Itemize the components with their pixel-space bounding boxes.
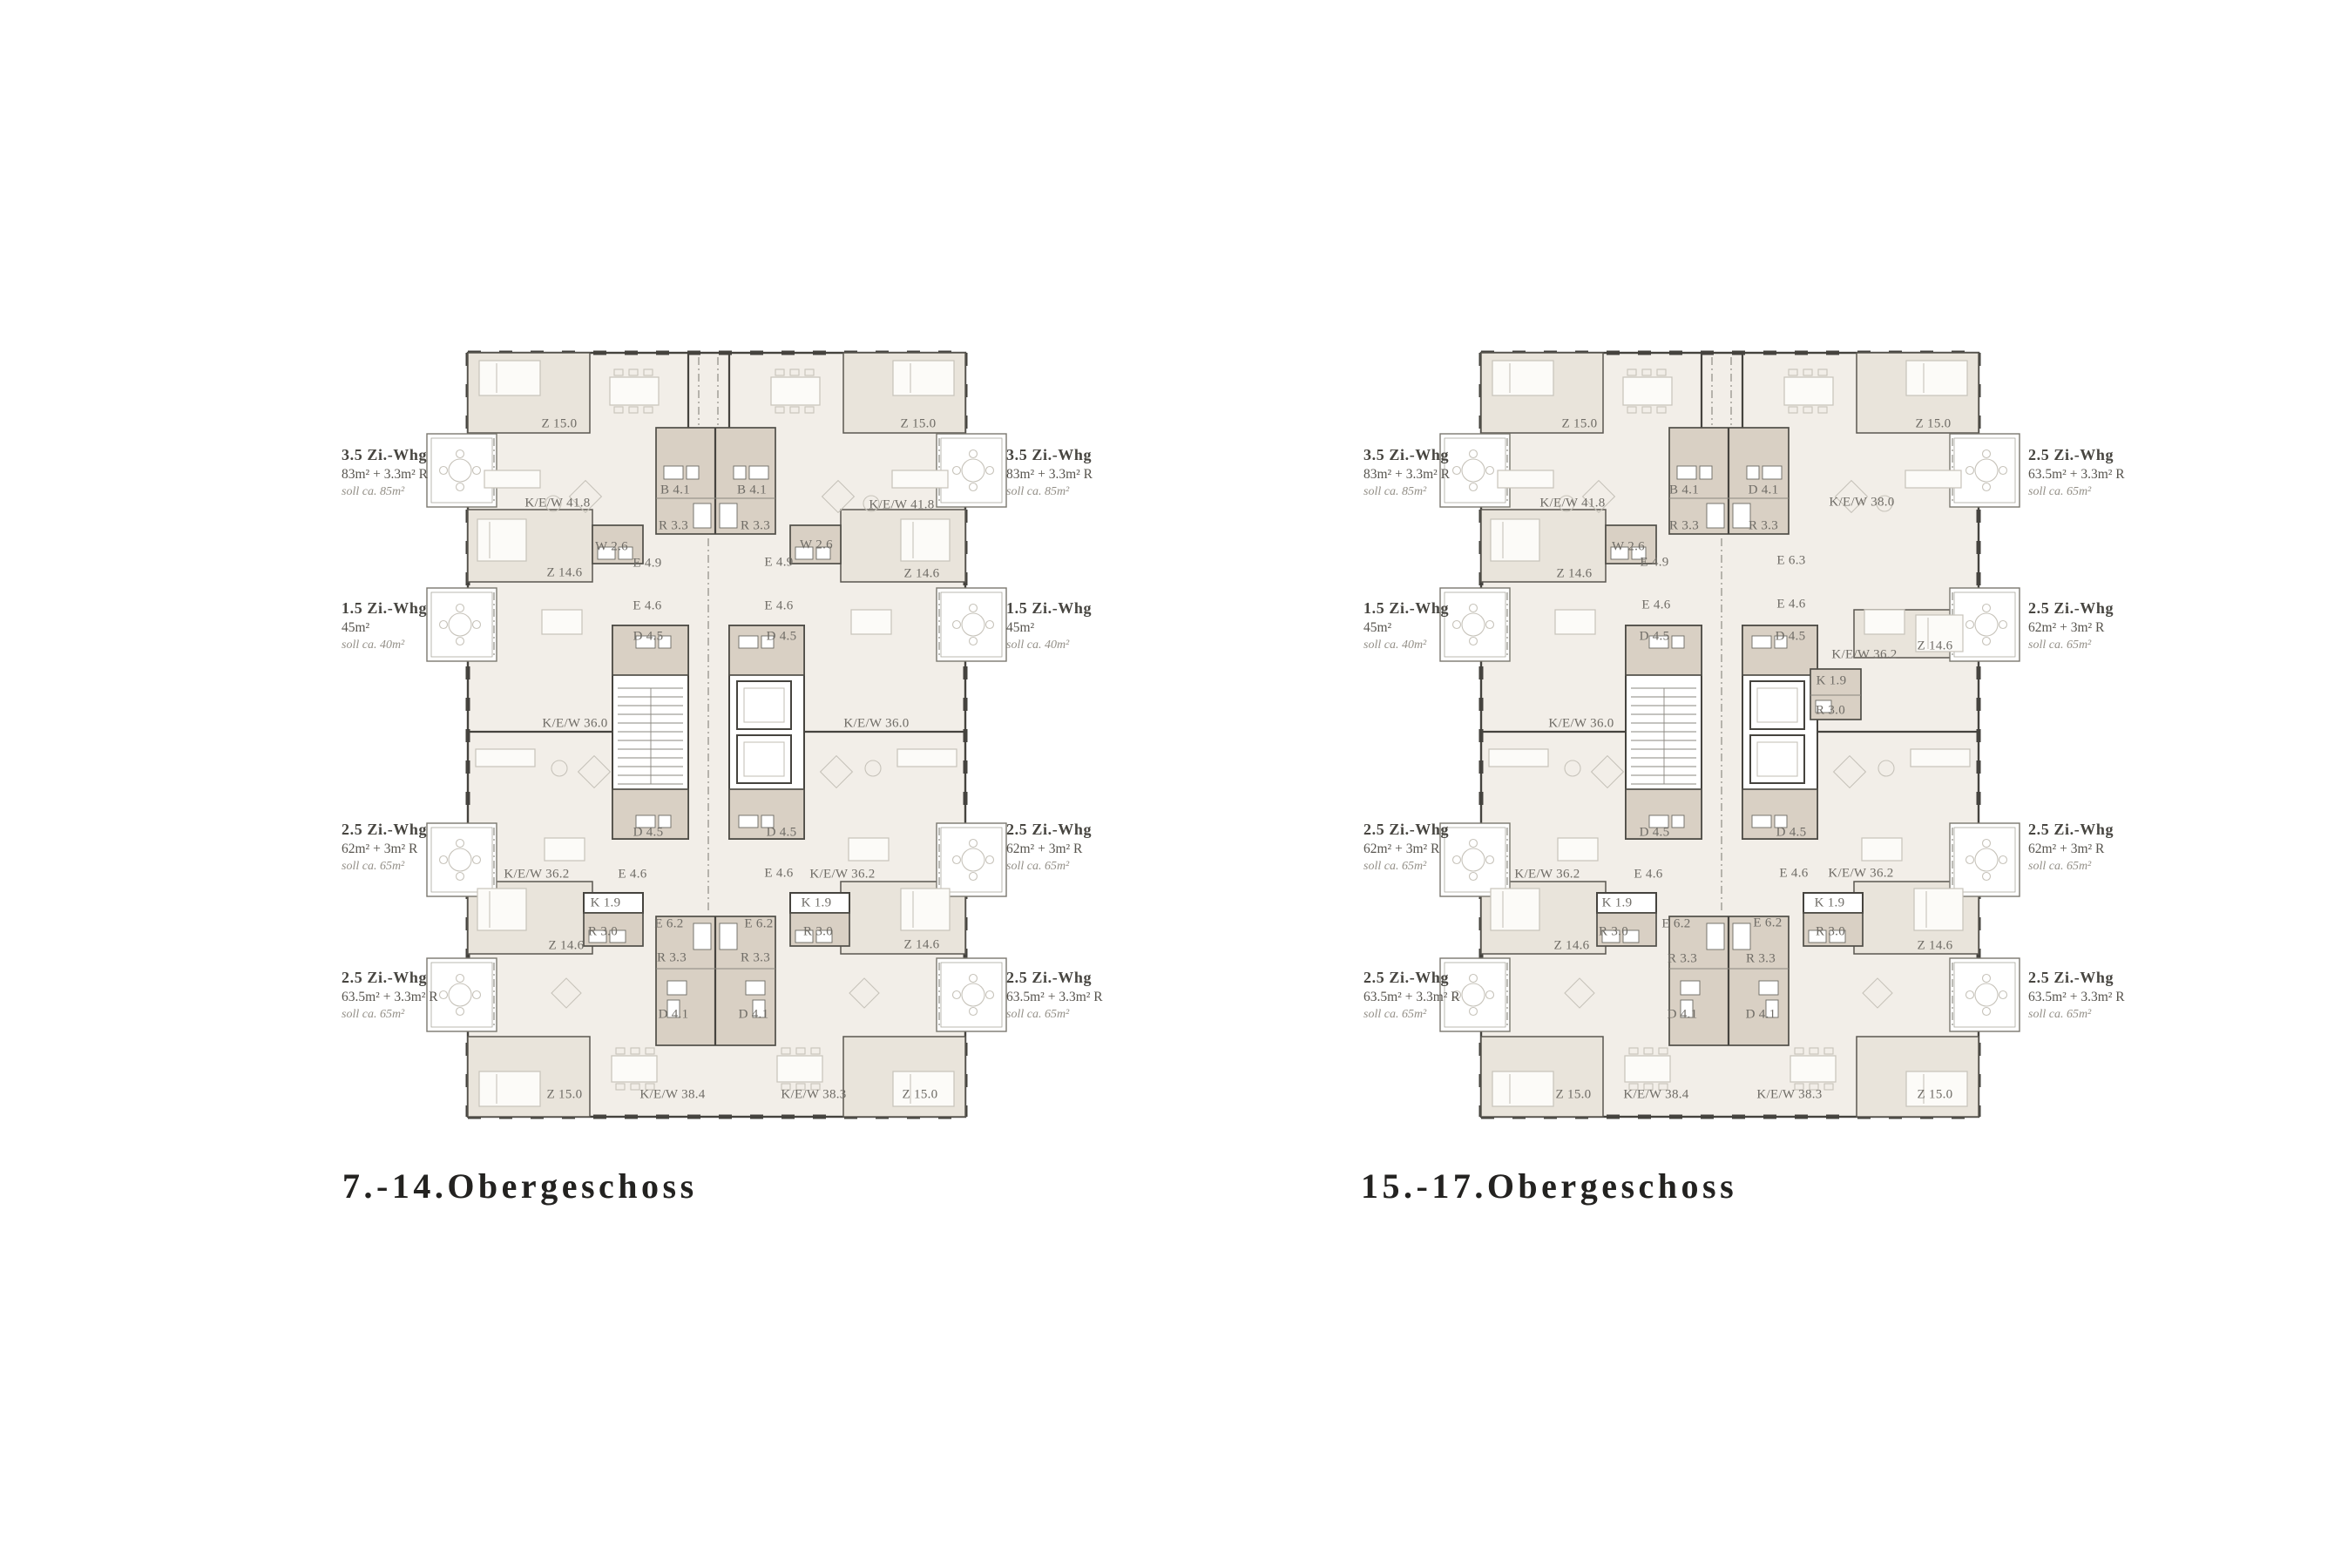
apartment-label: 2.5 Zi.-Whg62m² + 3m² Rsoll ca. 65m²	[342, 821, 427, 874]
floor-plan-sheet: Z 15.0Z 15.0K/E/W 41.8K/E/W 41.8B 4.1B 4…	[0, 0, 2341, 1568]
apartment-area-label: 83m² + 3.3m² R	[1363, 467, 1450, 483]
room-label: D 4.5	[1640, 826, 1670, 841]
room-label: E 4.6	[764, 599, 793, 614]
apartment-area-label: 62m² + 3m² R	[1363, 841, 1449, 858]
room-label: R 3.0	[1816, 704, 1845, 719]
apartment-label: 2.5 Zi.-Whg63.5m² + 3.3m² Rsoll ca. 65m²	[1006, 969, 1103, 1022]
apartment-area-label: 62m² + 3m² R	[342, 841, 427, 858]
apartment-area-label: 62m² + 3m² R	[2028, 841, 2114, 858]
room-label: B 4.1	[1669, 483, 1699, 498]
room-label: K/E/W 38.4	[639, 1088, 705, 1103]
apartment-soll-label: soll ca. 65m²	[1363, 859, 1449, 874]
room-label: K/E/W 38.3	[1756, 1088, 1822, 1103]
apartment-label: 2.5 Zi.-Whg62m² + 3m² Rsoll ca. 65m²	[2028, 599, 2114, 652]
apartment-type-label: 2.5 Zi.-Whg	[1006, 969, 1103, 988]
apartment-type-label: 2.5 Zi.-Whg	[2028, 821, 2114, 840]
apartment-type-label: 2.5 Zi.-Whg	[2028, 446, 2125, 465]
room-label: Z 15.0	[901, 417, 937, 432]
apartment-type-label: 3.5 Zi.-Whg	[342, 446, 428, 465]
room-label: R 3.3	[1746, 952, 1776, 967]
room-label: Z 14.6	[904, 938, 940, 953]
room-label: D 4.5	[767, 826, 797, 841]
apartment-label: 2.5 Zi.-Whg62m² + 3m² Rsoll ca. 65m²	[1006, 821, 1092, 874]
room-label: K/E/W 36.2	[1831, 648, 1897, 663]
apartment-label: 3.5 Zi.-Whg83m² + 3.3m² Rsoll ca. 85m²	[1363, 446, 1450, 499]
room-label: E 4.6	[1779, 867, 1808, 882]
apartment-soll-label: soll ca. 65m²	[2028, 859, 2114, 874]
apartment-type-label: 2.5 Zi.-Whg	[1006, 821, 1092, 840]
apartment-soll-label: soll ca. 40m²	[1006, 638, 1092, 652]
room-label: K 1.9	[591, 896, 621, 911]
room-label: Z 15.0	[1562, 417, 1598, 432]
room-label: D 4.5	[1776, 630, 1806, 645]
apartment-soll-label: soll ca. 65m²	[2028, 1007, 2125, 1022]
room-label: B 4.1	[737, 483, 767, 498]
apartment-area-label: 63.5m² + 3.3m² R	[1006, 990, 1103, 1006]
apartment-area-label: 45m²	[1006, 620, 1092, 637]
room-label: K/E/W 36.2	[1514, 868, 1580, 882]
floor-plan-svg	[418, 348, 1011, 1119]
room-label: E 4.6	[1776, 598, 1805, 612]
room-label: R 3.3	[741, 951, 770, 966]
room-label: K/E/W 38.0	[1829, 496, 1894, 510]
room-label: Z 15.0	[1918, 1088, 1953, 1103]
apartment-label: 3.5 Zi.-Whg83m² + 3.3m² Rsoll ca. 85m²	[1006, 446, 1093, 499]
room-label: E 4.9	[764, 556, 793, 571]
room-label: Z 14.6	[549, 939, 585, 954]
room-label: W 2.6	[800, 538, 833, 553]
room-label: Z 14.6	[904, 567, 940, 582]
room-label: D 4.1	[1749, 483, 1779, 498]
room-label: K 1.9	[1817, 674, 1847, 689]
room-label: Z 14.6	[1557, 567, 1593, 582]
room-label: D 4.5	[633, 826, 664, 841]
apartment-soll-label: soll ca. 65m²	[342, 1007, 438, 1022]
apartment-type-label: 1.5 Zi.-Whg	[1363, 599, 1449, 618]
apartment-soll-label: soll ca. 65m²	[1006, 859, 1092, 874]
room-label: K/E/W 36.0	[542, 717, 607, 732]
room-label: E 4.9	[633, 557, 661, 571]
room-label: K 1.9	[1815, 896, 1845, 911]
room-label: D 4.1	[659, 1008, 689, 1023]
apartment-type-label: 2.5 Zi.-Whg	[342, 821, 427, 840]
room-label: B 4.1	[660, 483, 690, 498]
floor-plan-drawing-7-14: Z 15.0Z 15.0K/E/W 41.8K/E/W 41.8B 4.1B 4…	[418, 348, 1011, 1119]
room-label: K/E/W 36.0	[843, 717, 909, 732]
apartment-label: 1.5 Zi.-Whg45m²soll ca. 40m²	[1006, 599, 1092, 652]
apartment-area-label: 63.5m² + 3.3m² R	[342, 990, 438, 1006]
room-label: Z 14.6	[1554, 939, 1590, 954]
plan-title-7-14: 7.-14.Obergeschoss	[342, 1166, 698, 1206]
apartment-type-label: 3.5 Zi.-Whg	[1006, 446, 1093, 465]
apartment-type-label: 1.5 Zi.-Whg	[342, 599, 427, 618]
apartment-type-label: 2.5 Zi.-Whg	[1363, 969, 1460, 988]
room-label: E 6.2	[744, 917, 773, 932]
apartment-label: 1.5 Zi.-Whg45m²soll ca. 40m²	[342, 599, 427, 652]
room-label: W 2.6	[1612, 540, 1645, 555]
apartment-label: 3.5 Zi.-Whg83m² + 3.3m² Rsoll ca. 85m²	[342, 446, 428, 499]
room-label: D 4.1	[1668, 1008, 1698, 1023]
room-label: E 6.3	[1776, 554, 1805, 569]
room-label: E 4.6	[1641, 598, 1670, 613]
room-label: K/E/W 36.2	[504, 868, 569, 882]
apartment-type-label: 3.5 Zi.-Whg	[1363, 446, 1450, 465]
apartment-soll-label: soll ca. 40m²	[342, 638, 427, 652]
apartment-type-label: 2.5 Zi.-Whg	[2028, 969, 2125, 988]
room-label: K/E/W 36.2	[1828, 867, 1893, 882]
apartment-type-label: 2.5 Zi.-Whg	[342, 969, 438, 988]
apartment-area-label: 62m² + 3m² R	[1006, 841, 1092, 858]
room-label: Z 14.6	[547, 566, 583, 581]
room-label: R 3.3	[1749, 519, 1778, 534]
floor-plan-svg	[1431, 348, 2024, 1119]
apartment-soll-label: soll ca. 65m²	[1363, 1007, 1460, 1022]
room-label: K/E/W 38.3	[781, 1088, 846, 1103]
room-label: E 4.6	[633, 599, 661, 614]
room-label: K/E/W 41.8	[1539, 497, 1605, 511]
room-label: R 3.0	[803, 925, 833, 940]
apartment-area-label: 63.5m² + 3.3m² R	[2028, 467, 2125, 483]
room-label: E 6.2	[1753, 916, 1782, 931]
room-label: D 4.5	[1776, 826, 1807, 841]
apartment-type-label: 2.5 Zi.-Whg	[1363, 821, 1449, 840]
apartment-area-label: 63.5m² + 3.3m² R	[1363, 990, 1460, 1006]
room-label: K 1.9	[1602, 896, 1633, 911]
room-label: D 4.1	[1746, 1008, 1776, 1023]
apartment-label: 2.5 Zi.-Whg62m² + 3m² Rsoll ca. 65m²	[2028, 821, 2114, 874]
room-label: R 3.3	[741, 519, 770, 534]
plan-title-15-17: 15.-17.Obergeschoss	[1361, 1166, 1737, 1206]
room-label: R 3.3	[1669, 519, 1699, 534]
apartment-soll-label: soll ca. 85m²	[342, 484, 428, 499]
room-label: E 4.6	[764, 867, 793, 882]
apartment-label: 2.5 Zi.-Whg63.5m² + 3.3m² Rsoll ca. 65m²	[1363, 969, 1460, 1022]
room-label: D 4.5	[767, 630, 797, 645]
room-label: Z 15.0	[542, 417, 578, 432]
room-label: R 3.3	[659, 519, 688, 534]
apartment-area-label: 83m² + 3.3m² R	[1006, 467, 1093, 483]
apartment-area-label: 62m² + 3m² R	[2028, 620, 2114, 637]
apartment-soll-label: soll ca. 65m²	[342, 859, 427, 874]
room-label: E 4.6	[618, 868, 646, 882]
room-label: K/E/W 41.8	[869, 498, 934, 513]
room-label: D 4.1	[739, 1008, 769, 1023]
apartment-soll-label: soll ca. 65m²	[1006, 1007, 1103, 1022]
room-label: E 6.2	[1661, 917, 1690, 932]
apartment-type-label: 1.5 Zi.-Whg	[1006, 599, 1092, 618]
room-label: Z 15.0	[903, 1088, 938, 1103]
room-label: Z 15.0	[1916, 417, 1952, 432]
apartment-type-label: 2.5 Zi.-Whg	[2028, 599, 2114, 618]
room-label: E 4.9	[1640, 556, 1668, 571]
apartment-soll-label: soll ca. 40m²	[1363, 638, 1449, 652]
room-label: W 2.6	[595, 540, 628, 555]
apartment-label: 2.5 Zi.-Whg62m² + 3m² Rsoll ca. 65m²	[1363, 821, 1449, 874]
apartment-area-label: 83m² + 3.3m² R	[342, 467, 428, 483]
apartment-soll-label: soll ca. 85m²	[1363, 484, 1450, 499]
apartment-area-label: 63.5m² + 3.3m² R	[2028, 990, 2125, 1006]
apartment-area-label: 45m²	[1363, 620, 1449, 637]
room-label: K/E/W 41.8	[524, 497, 590, 511]
apartment-area-label: 45m²	[342, 620, 427, 637]
room-label: Z 14.6	[1918, 939, 1953, 954]
room-label: K/E/W 38.4	[1623, 1088, 1688, 1103]
apartment-label: 1.5 Zi.-Whg45m²soll ca. 40m²	[1363, 599, 1449, 652]
room-label: R 3.0	[1599, 925, 1628, 940]
apartment-label: 2.5 Zi.-Whg63.5m² + 3.3m² Rsoll ca. 65m²	[2028, 969, 2125, 1022]
room-label: D 4.5	[1640, 630, 1670, 645]
room-label: K 1.9	[802, 896, 832, 911]
apartment-soll-label: soll ca. 85m²	[1006, 484, 1093, 499]
room-label: E 6.2	[654, 917, 683, 932]
room-label: E 4.6	[1634, 868, 1662, 882]
room-label: R 3.3	[657, 951, 687, 966]
apartment-label: 2.5 Zi.-Whg63.5m² + 3.3m² Rsoll ca. 65m²	[342, 969, 438, 1022]
room-label: K/E/W 36.0	[1548, 717, 1614, 732]
floor-plan-drawing-15-17: Z 15.0Z 15.0K/E/W 41.8K/E/W 38.0B 4.1D 4…	[1431, 348, 2024, 1119]
room-label: K/E/W 36.2	[809, 868, 875, 882]
room-label: R 3.3	[1668, 952, 1697, 967]
room-label: Z 15.0	[547, 1088, 583, 1103]
apartment-label: 2.5 Zi.-Whg63.5m² + 3.3m² Rsoll ca. 65m²	[2028, 446, 2125, 499]
apartment-soll-label: soll ca. 65m²	[2028, 638, 2114, 652]
apartment-soll-label: soll ca. 65m²	[2028, 484, 2125, 499]
room-label: Z 15.0	[1556, 1088, 1592, 1103]
room-label: R 3.0	[588, 925, 618, 940]
room-label: Z 14.6	[1918, 639, 1953, 654]
room-label: R 3.0	[1816, 925, 1845, 940]
room-label: D 4.5	[633, 630, 664, 645]
